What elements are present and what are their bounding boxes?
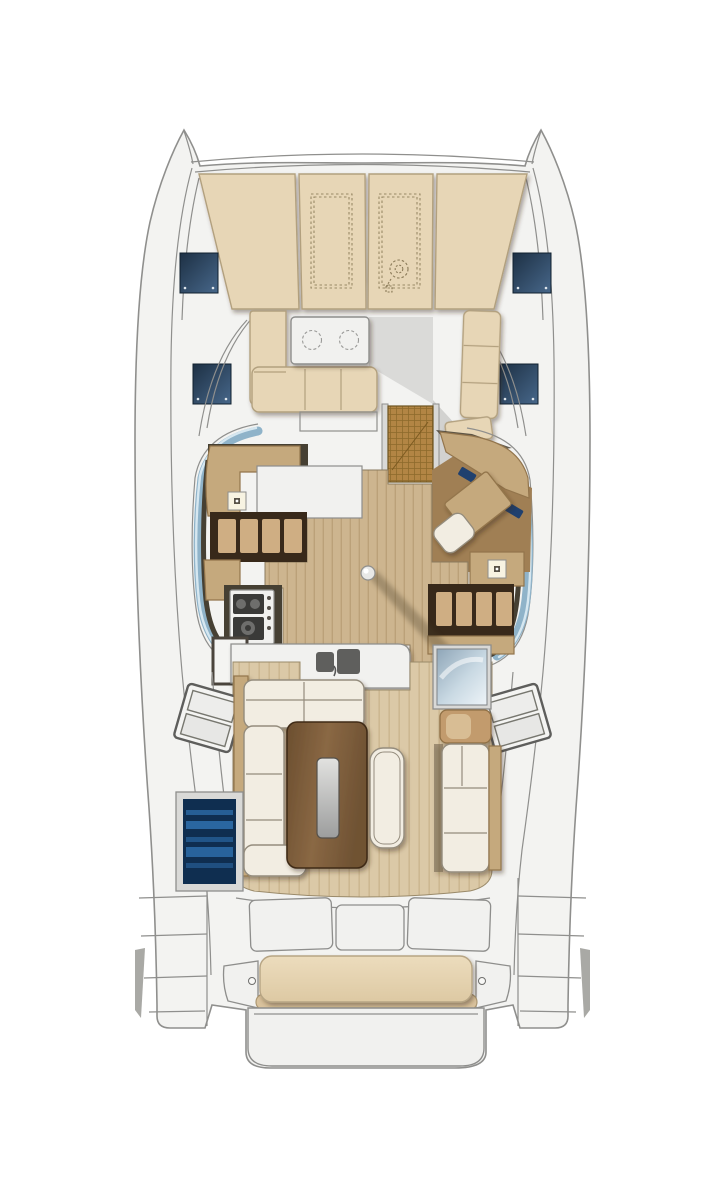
sunpad-cushions bbox=[199, 174, 527, 309]
aft-lockers bbox=[249, 898, 491, 952]
glass-module bbox=[433, 645, 491, 709]
starboard-corner-seat bbox=[440, 710, 491, 743]
fridge-unit bbox=[176, 792, 243, 891]
spotlight-starboard bbox=[488, 560, 506, 578]
movable-bench bbox=[370, 748, 404, 848]
helm-bench bbox=[224, 956, 511, 1010]
swim-platform bbox=[248, 1008, 484, 1066]
sink-basin bbox=[316, 652, 334, 672]
cockpit-table bbox=[287, 722, 367, 868]
table-insert bbox=[317, 758, 339, 838]
sink-basin bbox=[337, 649, 360, 674]
forward-table bbox=[291, 317, 369, 364]
helm-bench-cushion bbox=[260, 956, 472, 1002]
stern bbox=[224, 898, 511, 1066]
floorplan-canvas bbox=[0, 0, 720, 1200]
spotlight-port bbox=[228, 492, 246, 510]
galley-cabinet-top bbox=[257, 466, 362, 518]
catamaran-floorplan bbox=[0, 0, 720, 1200]
starboard-bench bbox=[434, 744, 501, 872]
companionway-mat bbox=[382, 404, 439, 484]
